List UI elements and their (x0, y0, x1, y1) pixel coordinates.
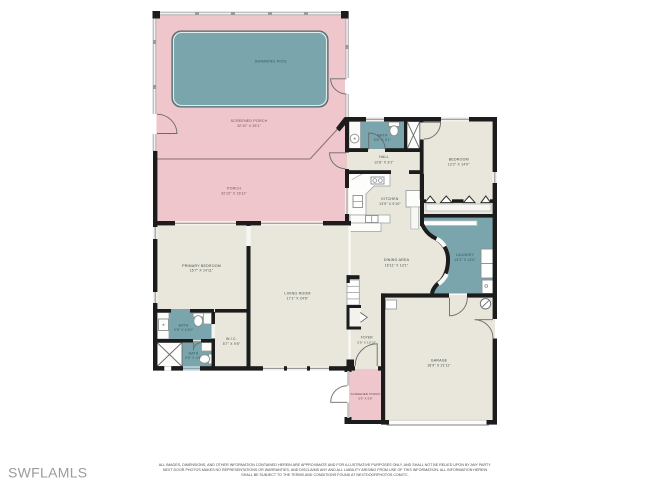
svg-text:HALL: HALL (379, 155, 389, 159)
svg-text:GARAGE: GARAGE (431, 359, 448, 363)
svg-text:ALL IMAGES, DIMENSIONS, AND OT: ALL IMAGES, DIMENSIONS, AND OTHER INFORM… (159, 463, 492, 467)
svg-text:13'9" X 9'10": 13'9" X 9'10" (379, 202, 401, 206)
svg-text:17'1" X 24'6": 17'1" X 24'6" (287, 297, 309, 301)
svg-text:5'7" X 9'5": 5'7" X 9'5" (223, 342, 241, 346)
svg-text:9'5" X 4'6": 9'5" X 4'6" (185, 356, 203, 360)
svg-text:BATH: BATH (179, 323, 189, 327)
svg-text:FOYER: FOYER (361, 336, 373, 340)
svg-text:W.I.C.: W.I.C. (226, 337, 237, 341)
svg-text:13'3" X 13'6": 13'3" X 13'6" (454, 258, 476, 262)
svg-text:BATH: BATH (189, 351, 199, 355)
svg-text:SWFLAMLS: SWFLAMLS (8, 465, 87, 481)
svg-text:32'10" X 16'11": 32'10" X 16'11" (221, 192, 247, 196)
svg-text:12'8" X 3'2": 12'8" X 3'2" (374, 160, 394, 164)
svg-text:SWIMMING POOL: SWIMMING POOL (255, 59, 288, 63)
svg-text:9'5" X 4'10": 9'5" X 4'10" (174, 328, 194, 332)
svg-text:5'9" X 10'10": 5'9" X 10'10" (357, 340, 376, 344)
svg-text:LAUNDRY: LAUNDRY (456, 253, 475, 257)
svg-text:5'8" X 5'1": 5'8" X 5'1" (374, 138, 392, 142)
svg-text:PORCH: PORCH (227, 187, 241, 191)
svg-text:SCREENED PORCH: SCREENED PORCH (231, 119, 268, 123)
svg-text:PRIMARY BEDROOM: PRIMARY BEDROOM (182, 264, 221, 268)
svg-text:18'9" X 21'11": 18'9" X 21'11" (427, 364, 451, 368)
svg-text:15'7" X 14'11": 15'7" X 14'11" (190, 269, 214, 273)
svg-text:NEXT DOOR PHOTOS MAKES NO REPR: NEXT DOOR PHOTOS MAKES NO REPRESENTATION… (163, 468, 488, 472)
svg-text:32'10" X 25'1": 32'10" X 25'1" (237, 124, 261, 128)
svg-text:LIVING ROOM: LIVING ROOM (284, 292, 310, 296)
svg-text:BEDROOM: BEDROOM (449, 157, 469, 161)
svg-text:SHALL BE SUBJECT TO THE TERMS: SHALL BE SUBJECT TO THE TERMS AND CONDIT… (241, 473, 408, 477)
svg-text:DINING AREA: DINING AREA (384, 258, 410, 262)
svg-text:12'2" X 14'0": 12'2" X 14'0" (448, 163, 470, 167)
svg-text:SCREENED PORCH: SCREENED PORCH (351, 392, 381, 396)
svg-text:BATH: BATH (377, 133, 387, 137)
svg-text:KITCHEN: KITCHEN (381, 197, 398, 201)
svg-text:5'9" X 9'5": 5'9" X 9'5" (358, 397, 373, 401)
svg-text:16'11" X 13'1": 16'11" X 13'1" (385, 263, 409, 267)
